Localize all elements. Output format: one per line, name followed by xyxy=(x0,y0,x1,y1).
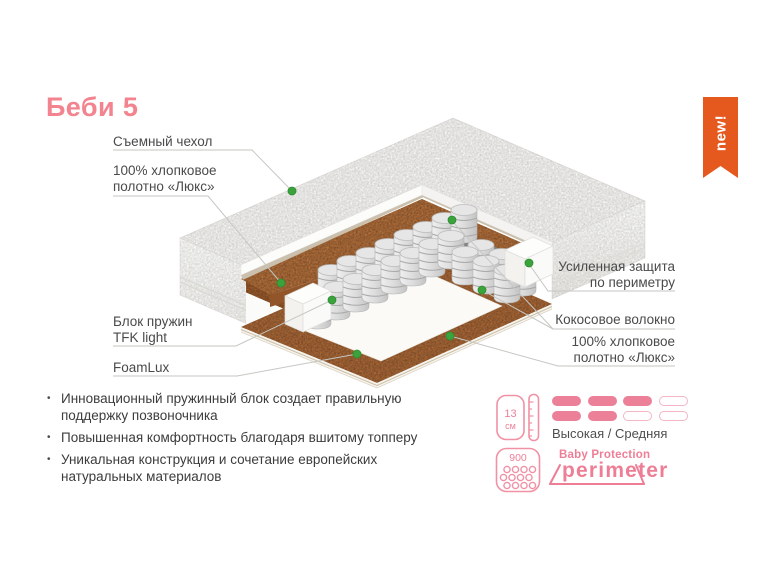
firmness-bar-filled xyxy=(588,396,617,406)
firmness-bar-empty xyxy=(623,411,652,421)
firmness-bar-empty xyxy=(659,396,688,406)
firmness-bar-filled xyxy=(623,396,652,406)
springs-count-icon: 900 xyxy=(495,447,543,495)
firmness-row xyxy=(552,396,688,406)
firmness-label: Высокая / Средняя xyxy=(552,426,667,441)
svg-text:13: 13 xyxy=(504,408,516,420)
mattress-height-icon: 13 см xyxy=(495,392,545,444)
feature-list: Инновационный пружинный блок создает пра… xyxy=(44,390,422,490)
product-infographic: Беби 5 new! Съемный чехол 100% хлопковое… xyxy=(0,0,768,568)
callout-cotton-top: 100% хлопковое полотно «Люкс» xyxy=(113,163,216,194)
new-badge: new! xyxy=(703,97,738,178)
callout-cover: Съемный чехол xyxy=(113,134,212,150)
feature-item: Инновационный пружинный блок создает пра… xyxy=(44,390,422,424)
firmness-bar-empty xyxy=(659,411,688,421)
new-badge-label: new! xyxy=(712,115,729,151)
feature-item: Уникальная конструкция и сочетание европ… xyxy=(44,451,422,485)
page-title: Беби 5 xyxy=(46,92,138,123)
callout-cotton-bottom: 100% хлопковое полотно «Люкс» xyxy=(572,334,675,365)
svg-text:900: 900 xyxy=(509,452,527,464)
firmness-bar-filled xyxy=(588,411,617,421)
callout-coconut: Кокосовое волокно xyxy=(555,312,675,328)
svg-text:см: см xyxy=(505,421,516,431)
feature-item: Повышенная комфортность благодаря вшитом… xyxy=(44,429,422,446)
callout-perimeter: Усиленная защита по периметру xyxy=(558,259,675,290)
firmness-bar-filled xyxy=(552,411,581,421)
firmness-bar-filled xyxy=(552,396,581,406)
firmness-indicator xyxy=(552,396,688,421)
firmness-row xyxy=(552,411,688,421)
callout-spring-block: Блок пружин TFK light xyxy=(113,314,193,345)
ruler-icon xyxy=(529,395,539,441)
callout-foamlux: FoamLux xyxy=(113,360,169,376)
brand-logo-frame xyxy=(546,460,652,490)
